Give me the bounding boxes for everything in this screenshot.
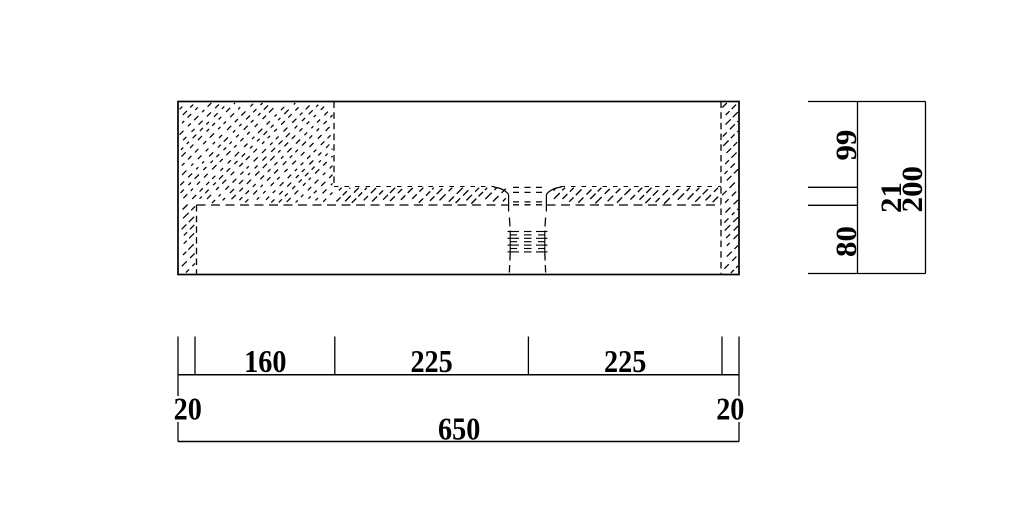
svg-text:20: 20 xyxy=(716,391,744,427)
svg-text:80: 80 xyxy=(829,226,862,257)
svg-text:160: 160 xyxy=(244,343,286,379)
svg-text:225: 225 xyxy=(604,343,646,379)
svg-text:20: 20 xyxy=(174,391,202,427)
svg-text:99: 99 xyxy=(829,130,862,161)
svg-text:225: 225 xyxy=(410,343,452,379)
svg-text:650: 650 xyxy=(438,411,480,447)
svg-text:200: 200 xyxy=(895,166,928,212)
